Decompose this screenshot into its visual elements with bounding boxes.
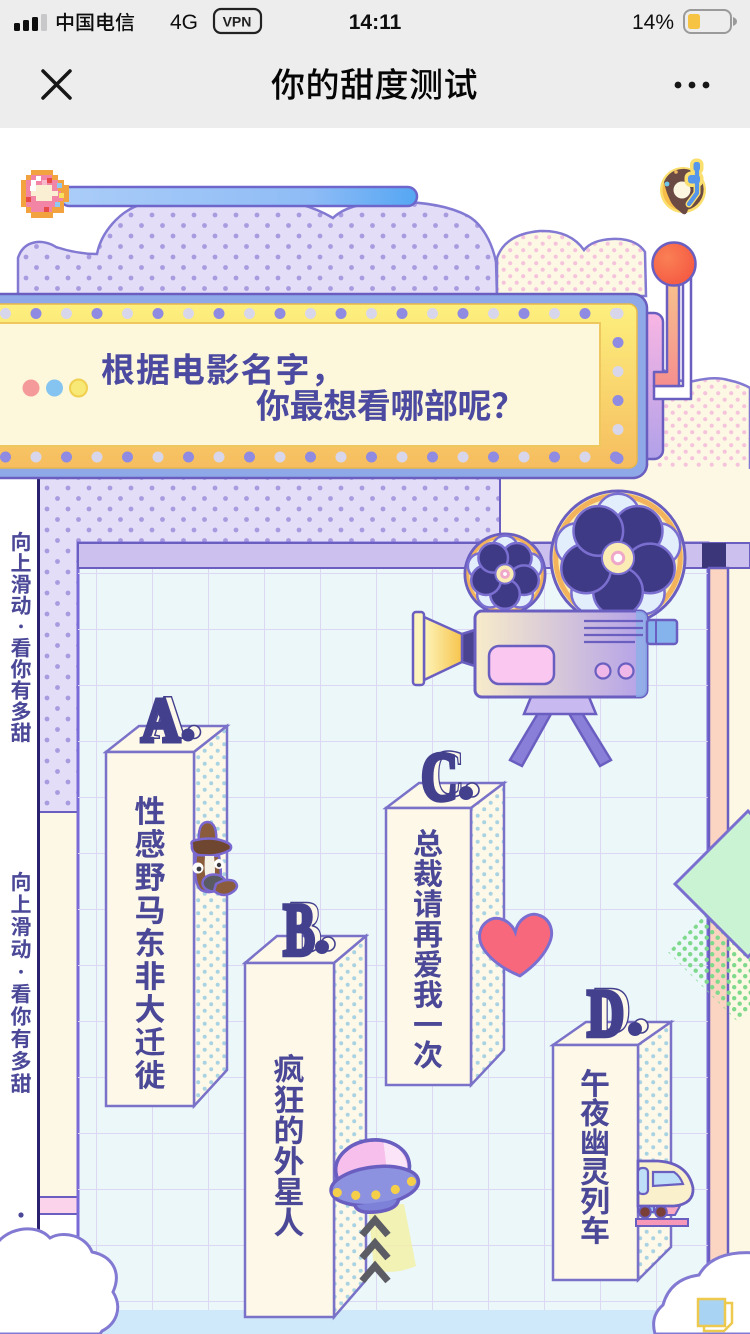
svg-text:A: A: [141, 685, 180, 755]
svg-text:14%: 14%: [632, 11, 674, 34]
svg-text:D: D: [587, 976, 624, 1051]
svg-text:VPN: VPN: [223, 14, 252, 30]
svg-text:C: C: [421, 740, 458, 816]
svg-text:B: B: [283, 888, 315, 971]
svg-text:14:11: 14:11: [349, 11, 402, 34]
svg-text:4G: 4G: [170, 11, 198, 34]
